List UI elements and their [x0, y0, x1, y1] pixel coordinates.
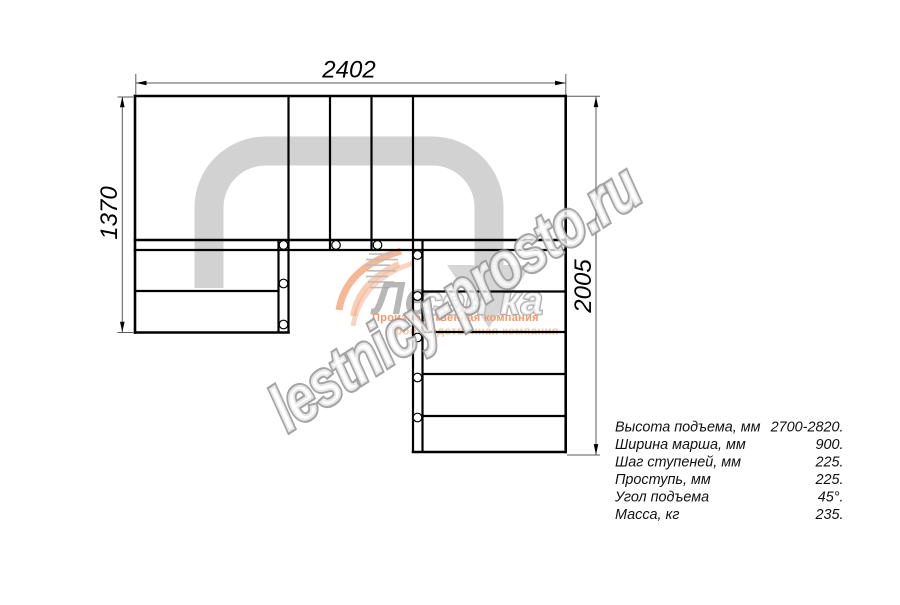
svg-text:225.: 225. [814, 455, 843, 471]
svg-text:235.: 235. [814, 507, 843, 523]
svg-text:Проступь, мм: Проступь, мм [615, 472, 711, 488]
svg-text:2700-2820.: 2700-2820. [770, 420, 844, 436]
svg-text:225.: 225. [814, 472, 843, 488]
svg-text:Ширина марша, мм: Ширина марша, мм [615, 437, 746, 453]
svg-text:1370: 1370 [96, 186, 123, 240]
svg-text:Масса, кг: Масса, кг [615, 507, 679, 523]
svg-text:Шаг ступеней, мм: Шаг ступеней, мм [615, 455, 741, 471]
svg-text:45°.: 45°. [818, 490, 844, 506]
svg-text:900.: 900. [815, 437, 843, 453]
svg-text:Высота подъема, мм: Высота подъема, мм [615, 420, 761, 436]
svg-text:Угол подъема: Угол подъема [614, 490, 709, 506]
svg-text:2402: 2402 [321, 57, 375, 84]
svg-text:2005: 2005 [570, 259, 597, 314]
